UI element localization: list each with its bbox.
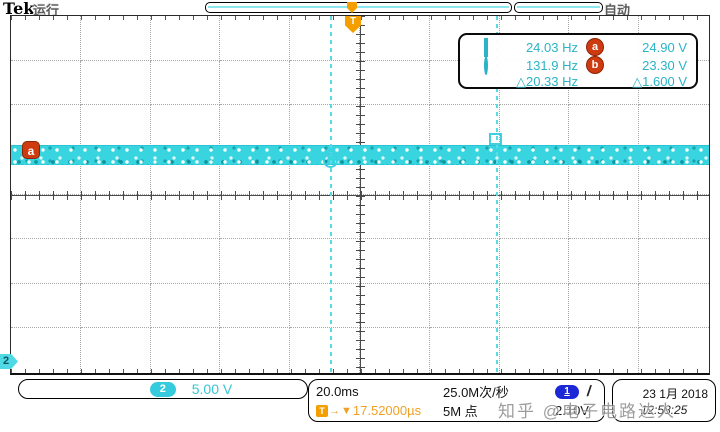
trigger-position-icon <box>347 2 357 13</box>
delta-voltage: △1.600 V <box>632 74 687 90</box>
channel2-scale-value: 5.00 V <box>192 381 232 397</box>
cursor-a-voltage: 24.90 V <box>642 40 687 55</box>
record-view-line <box>517 6 600 8</box>
cursor-b-voltage: 23.30 V <box>642 58 687 73</box>
delta-frequency: △20.33 Hz <box>516 74 578 90</box>
trigger-delay-value: 17.52000µs <box>353 403 421 418</box>
oscilloscope-screen: Tek 运行 自动 T a 2 24.03 Hz a 24.90 V 131.9… <box>0 0 720 432</box>
circle-icon <box>484 58 488 73</box>
cursor-a-square-icon <box>489 133 502 145</box>
cursor-a-badge: a <box>586 38 604 56</box>
cursor-a-frequency: 24.03 Hz <box>526 40 578 55</box>
timebase-value: 20.0ms <box>316 384 443 399</box>
arrow-right-icon: → <box>329 405 340 417</box>
record-view-bar <box>205 2 512 13</box>
channel2-scale-box: 2 5.00 V <box>18 379 308 399</box>
cursor-b-circle-icon <box>323 153 338 168</box>
cursor-b-line[interactable] <box>330 16 332 373</box>
arrow-down-icon: ▼ <box>341 405 352 417</box>
channel2-waveform <box>11 145 709 165</box>
square-icon <box>484 40 488 55</box>
cursor-b-badge: b <box>586 56 604 74</box>
cursor-b-frequency: 131.9 Hz <box>526 58 578 73</box>
trigger-t-icon: T <box>316 405 328 417</box>
cursor-readout-panel: 24.03 Hz a 24.90 V 131.9 Hz b 23.30 V △2… <box>458 33 698 89</box>
vertical-axis <box>360 16 361 373</box>
record-view-line <box>208 6 509 8</box>
channel2-badge: 2 <box>150 382 176 397</box>
waveform-a-badge: a <box>22 141 40 159</box>
record-view-bar-right <box>514 2 603 13</box>
zhihu-watermark: 知乎 @电子电路达人 <box>498 397 676 422</box>
